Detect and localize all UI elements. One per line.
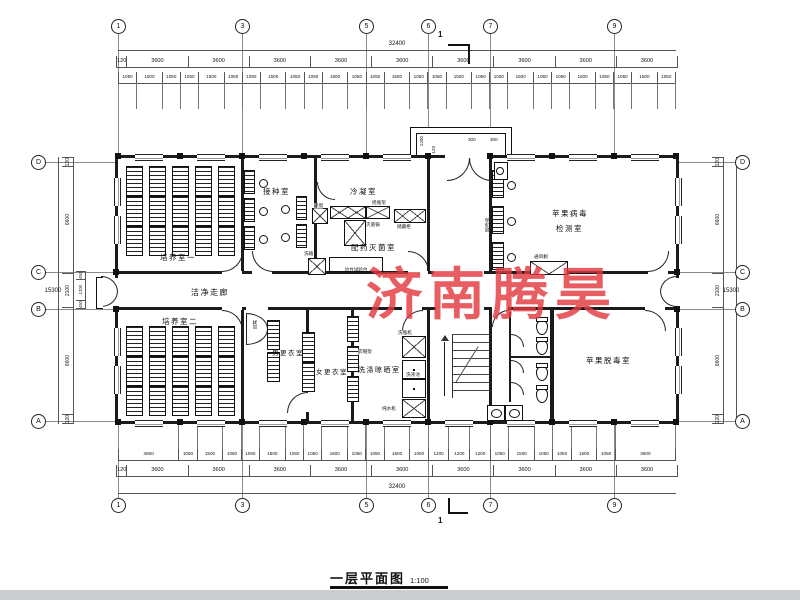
column-mark	[549, 153, 555, 159]
dim-left-sub: 4501200450	[76, 271, 86, 309]
dim-segment: 1050	[367, 72, 385, 83]
window	[135, 420, 163, 427]
dim-segment: 2100	[62, 274, 73, 309]
dim-segment: 3600	[617, 465, 678, 476]
pass-window-label: 递窗	[314, 203, 323, 209]
dim-segment: 3600	[433, 465, 494, 476]
grid-bubble-top-6: 6	[421, 19, 436, 34]
wall-corridor-c1	[115, 271, 222, 274]
wash-box	[308, 258, 326, 275]
window	[321, 420, 349, 427]
column-mark	[177, 419, 183, 425]
dim-bottom-sub: 3600105015001050105015001050105015001050…	[118, 449, 676, 461]
shelf-rack	[195, 326, 212, 356]
shelf-rack	[195, 226, 212, 256]
window	[675, 366, 682, 394]
grid-bubble-top-1: 1	[111, 19, 126, 34]
window	[675, 328, 682, 356]
dim-segment: 3600	[189, 465, 250, 476]
dim-segment: 1500	[261, 72, 287, 83]
dim-value: 15300	[723, 288, 740, 294]
entrance-dim-300a: 300	[468, 137, 476, 142]
section-mark-top-v	[468, 44, 470, 64]
floor-plan-canvas: 1 3 5 6 7 9 1 3 5 6 7 9 D C B A D C B A …	[0, 0, 800, 600]
column-mark	[611, 153, 617, 159]
dim-top-sub: 1050150010501050150010501050150010501050…	[118, 72, 676, 84]
dim-value: 32400	[389, 41, 406, 47]
room-label-virus-line2: 检测室	[556, 223, 583, 234]
entrance-door-leaf-left	[447, 158, 470, 181]
window	[507, 420, 535, 427]
stool	[259, 207, 268, 216]
stool	[507, 217, 516, 226]
window	[631, 154, 659, 161]
column-mark	[363, 419, 369, 425]
dim-segment: 3600	[250, 465, 311, 476]
shelf-rack	[195, 386, 212, 416]
shelf-rack	[218, 196, 235, 226]
window	[259, 154, 287, 161]
room-label-culture1: 培养室一	[160, 252, 196, 263]
stool	[281, 233, 290, 242]
window	[114, 216, 121, 244]
storage-cabinet	[394, 209, 426, 223]
bench-hatched	[330, 206, 366, 219]
column-mark	[363, 153, 369, 159]
grid-bubble-right-A: A	[735, 414, 750, 429]
wash-sink	[505, 405, 523, 421]
dim-segment: 1050	[410, 449, 428, 460]
drawing-scale: 1:100	[410, 576, 429, 585]
dim-segment: 1050	[179, 449, 197, 460]
grid-line-9	[614, 34, 615, 155]
dim-segment: 1050	[534, 72, 552, 83]
wall-wc-mid	[509, 356, 552, 358]
grid-bubble-bot-7: 7	[483, 498, 498, 513]
grid-bubble-bot-1: 1	[111, 498, 126, 513]
entry-stoop	[96, 277, 103, 309]
shelf-rack	[218, 386, 235, 416]
column-mark	[549, 419, 555, 425]
corridor-east-door-lower	[660, 291, 677, 307]
dim-segment: 1050	[614, 72, 632, 83]
watermark-text: 济南腾昊	[366, 250, 618, 331]
dim-value: 15300	[45, 288, 62, 294]
water-machine-label: 纯水机	[382, 406, 396, 412]
wc-stall-door	[511, 360, 524, 373]
grid-bubble-left-D: D	[31, 155, 46, 170]
section-mark-bot-label: 1	[438, 516, 444, 525]
dim-segment: 1200	[76, 280, 85, 300]
detox-room-door	[645, 310, 666, 331]
shelf-rack	[126, 386, 143, 416]
shelf-rack	[172, 196, 189, 226]
grid-bubble-right-B: B	[735, 302, 750, 317]
shelf-rack	[195, 196, 212, 226]
dim-segment: 120	[712, 157, 723, 167]
dim-segment: 1500	[632, 72, 658, 83]
work-bench	[296, 224, 307, 248]
column-mark	[177, 153, 183, 159]
dim-segment: 6600	[712, 167, 723, 273]
window	[445, 420, 473, 427]
dim-segment: 1050	[223, 449, 241, 460]
grid-bubble-top-9: 9	[607, 19, 622, 34]
window	[675, 178, 682, 206]
title-underline	[330, 586, 448, 589]
shelf-rack	[149, 356, 166, 386]
shelf-rack	[126, 196, 143, 226]
dim-segment: 3600	[494, 465, 555, 476]
dim-segment: 1050	[491, 449, 509, 460]
grid-bubble-bot-5: 5	[359, 498, 374, 513]
locker	[267, 320, 280, 350]
page-edge-strip	[0, 590, 800, 600]
shelf-rack	[149, 196, 166, 226]
window	[197, 420, 225, 427]
window	[197, 154, 225, 161]
dim-segment: 1050	[472, 72, 490, 83]
dim-segment: 3600	[189, 56, 250, 67]
dim-segment: 1500	[447, 72, 473, 83]
dim-top-bays: 120360036003600360036003600360036003600	[116, 56, 678, 68]
entrance-depth-dim: 1200	[419, 136, 424, 146]
dim-segment: 1050	[225, 72, 243, 83]
column-mark	[301, 419, 307, 425]
column-mark	[674, 269, 680, 275]
grid-bubble-bot-9: 9	[607, 498, 622, 513]
grid-bubble-left-A: A	[31, 414, 46, 429]
window	[321, 154, 349, 161]
wc-stall-door	[511, 334, 524, 347]
sink-label: 洗涤池	[406, 372, 420, 378]
column-mark	[611, 419, 617, 425]
dim-segment: 1050	[535, 449, 553, 460]
column-mark	[239, 419, 245, 425]
work-bench	[244, 198, 255, 222]
window	[383, 154, 411, 161]
dim-bottom-overall: 32400	[118, 483, 676, 494]
work-bench	[244, 170, 255, 194]
dim-segment: 1050	[490, 72, 508, 83]
dim-segment: 3600	[127, 465, 188, 476]
dim-segment: 1050	[366, 449, 384, 460]
wall-corridor-b1	[115, 307, 222, 310]
drawing-title: 一层平面图	[330, 571, 405, 586]
toilet	[536, 366, 548, 381]
shelf-rack	[172, 356, 189, 386]
room-label-men: 男更衣室	[272, 347, 304, 357]
dim-right-overall: 15300	[726, 157, 737, 424]
window	[114, 366, 121, 394]
shelf-rack	[172, 386, 189, 416]
dim-segment: 3600	[494, 56, 555, 67]
dim-segment: 1050	[286, 449, 304, 460]
work-bench	[296, 196, 307, 220]
dim-segment: 1050	[597, 449, 615, 460]
shelf-rack	[218, 166, 235, 196]
dim-segment: 1500	[199, 72, 225, 83]
dim-segment: 1500	[385, 72, 411, 83]
section-mark-top-label: 1	[438, 30, 444, 39]
pass-window-box	[312, 208, 328, 224]
corridor-west-door-upper	[101, 276, 118, 292]
shelf-rack	[218, 326, 235, 356]
hall-fixture-basin	[496, 167, 504, 175]
shelf-rack	[195, 166, 212, 196]
bottle-washer	[402, 336, 426, 358]
window	[507, 154, 535, 161]
toilet	[536, 340, 548, 355]
dim-top-overall: 32400	[118, 40, 676, 51]
room-label-culture2: 培养室二	[162, 316, 198, 327]
room-label-virus-line1: 苹果病毒	[552, 208, 588, 219]
dim-segment: 1200	[429, 449, 450, 460]
stool	[281, 205, 290, 214]
dim-segment: 1200	[449, 449, 470, 460]
dim-value: 32400	[389, 484, 406, 490]
coat-rack-label: 衣帽架	[358, 349, 372, 355]
dim-left-segs: 120660021006600120	[62, 157, 74, 424]
dim-segment: 120	[116, 56, 127, 67]
locker	[302, 362, 315, 392]
column-mark	[425, 419, 431, 425]
corridor-east-door-upper	[660, 276, 677, 292]
dim-segment: 1050	[181, 72, 199, 83]
entrance-dim-300b: 300	[490, 137, 498, 142]
dim-left-overall: 15300	[48, 157, 59, 424]
condensing-room-door	[317, 182, 335, 200]
dim-segment: 6600	[62, 308, 73, 414]
dim-segment: 1500	[385, 449, 411, 460]
dim-segment: 450	[76, 271, 85, 280]
dim-segment: 1500	[323, 72, 349, 83]
shelf-rack	[195, 356, 212, 386]
dim-bottom-bays: 120360036003600360036003600360036003600	[116, 465, 678, 477]
women-change-door	[287, 392, 308, 413]
section-mark-bot-h	[448, 512, 468, 514]
entrance-door-leaf-right	[469, 158, 492, 181]
dim-segment: 1050	[304, 449, 322, 460]
dim-segment: 450	[76, 301, 85, 309]
sterilizer-label: 灭菌锅	[366, 222, 380, 228]
column-mark	[115, 419, 121, 425]
grid-bubble-top-7: 7	[483, 19, 498, 34]
dim-segment: 6600	[62, 167, 73, 273]
room-label-women: 女更衣室	[316, 366, 348, 376]
wash-box-label: 洗箱	[304, 251, 313, 257]
dim-segment: 3600	[311, 465, 372, 476]
sink-basin	[402, 379, 426, 398]
clean-bench-label: 超净台	[484, 218, 490, 232]
side-bench-label: 边台试验台	[345, 267, 368, 272]
work-bench	[244, 226, 255, 250]
window	[114, 178, 121, 206]
dim-segment: 1500	[570, 72, 596, 83]
wall-corridor-c2	[242, 271, 252, 274]
inoculation-door	[252, 251, 273, 272]
room-label-detox: 苹果脱毒室	[586, 355, 631, 366]
dim-segment: 1050	[596, 72, 614, 83]
dim-segment: 2100	[712, 274, 723, 309]
dim-segment: 1500	[509, 449, 535, 460]
bench-hatched	[366, 206, 390, 219]
dim-segment: 3600	[556, 465, 617, 476]
dim-segment: 1050	[348, 72, 366, 83]
dim-segment: 3600	[372, 56, 433, 67]
dim-segment: 1050	[118, 72, 137, 83]
grid-bubble-bot-3: 3	[235, 498, 250, 513]
dim-segment: 1050	[552, 72, 570, 83]
dim-segment: 1500	[508, 72, 534, 83]
shelf-rack	[172, 326, 189, 356]
dim-segment: 3600	[372, 465, 433, 476]
wc-stall-door	[511, 382, 524, 395]
column-mark	[113, 306, 119, 312]
window	[383, 420, 411, 427]
dim-segment: 1050	[242, 449, 260, 460]
column-mark	[425, 153, 431, 159]
dim-segment: 3600	[118, 449, 179, 460]
stair-rail	[444, 342, 445, 396]
wall-rack	[347, 316, 359, 342]
column-mark	[113, 269, 119, 275]
clean-bench	[492, 206, 504, 234]
dim-segment: 120	[116, 465, 127, 476]
dim-segment: 1050	[305, 72, 323, 83]
room-label-condensing: 冷凝室	[350, 186, 377, 197]
room-label-corridor: 洁净走廊	[191, 287, 229, 298]
room-label-washing: 洗涤晾晒室	[358, 365, 401, 375]
entrance-wall-dim: 120	[431, 146, 436, 154]
dim-segment: 120	[62, 157, 73, 167]
dim-segment: 3600	[311, 56, 372, 67]
dim-segment: 3600	[556, 56, 617, 67]
drawing-title-block: 一层平面图1:100	[330, 568, 429, 588]
dim-segment: 1500	[198, 449, 224, 460]
virus-room-door	[648, 251, 669, 272]
grid-bubble-top-5: 5	[359, 19, 374, 34]
water-machine	[402, 399, 426, 418]
dim-segment: 1500	[137, 72, 163, 83]
stool	[259, 235, 268, 244]
window	[259, 420, 287, 427]
dim-segment: 1050	[348, 449, 366, 460]
shelf-rack	[149, 166, 166, 196]
grid-bubble-left-C: C	[31, 265, 46, 280]
shelf-rack	[126, 226, 143, 256]
grid-line-1	[118, 34, 119, 155]
window	[569, 420, 597, 427]
dim-segment: 1500	[572, 449, 598, 460]
dim-segment: 1050	[410, 72, 428, 83]
dim-segment: 1050	[658, 72, 676, 83]
storage-label: 储藏柜	[397, 224, 411, 230]
window	[631, 420, 659, 427]
dim-segment: 1050	[428, 72, 446, 83]
dim-segment: 120	[712, 415, 723, 424]
staircase	[452, 334, 489, 398]
dim-segment: 1200	[470, 449, 491, 460]
dim-segment: 3600	[616, 449, 676, 460]
room-label-inoculation: 接种室	[263, 186, 290, 197]
window	[114, 328, 121, 356]
dim-segment: 3600	[250, 56, 311, 67]
grid-bubble-top-3: 3	[235, 19, 250, 34]
window	[135, 154, 163, 161]
dim-segment: 1050	[286, 72, 304, 83]
dim-segment: 1050	[163, 72, 181, 83]
dim-segment: 1500	[322, 449, 348, 460]
grid-bubble-bot-6: 6	[421, 498, 436, 513]
column-mark	[673, 419, 679, 425]
shelf-rack	[218, 356, 235, 386]
corridor-west-door-lower	[101, 291, 118, 307]
dim-segment: 3600	[127, 56, 188, 67]
shaker-rack-label: 摇瓶架	[372, 200, 386, 206]
dim-segment: 6600	[712, 308, 723, 414]
stair-arrow	[441, 335, 449, 341]
wash-sink	[487, 405, 505, 421]
shelf-rack	[126, 166, 143, 196]
window	[569, 154, 597, 161]
dim-segment: 120	[62, 415, 73, 424]
section-mark-top-h	[448, 44, 470, 46]
grid-bubble-right-C: C	[735, 265, 750, 280]
grid-bubble-right-D: D	[735, 155, 750, 170]
shelf-rack	[172, 166, 189, 196]
grid-bubble-left-B: B	[31, 302, 46, 317]
toilet	[536, 388, 548, 403]
dim-segment: 1050	[553, 449, 571, 460]
column-mark	[239, 153, 245, 159]
wall-rack	[347, 376, 359, 402]
shelf-rack	[149, 386, 166, 416]
window	[675, 216, 682, 244]
wall-left-lower	[115, 306, 118, 424]
shelf-rack	[149, 326, 166, 356]
column-mark	[673, 153, 679, 159]
shelf-rack	[218, 226, 235, 256]
column-mark	[115, 153, 121, 159]
shelf-rack	[126, 326, 143, 356]
dim-segment: 1500	[260, 449, 286, 460]
wall-right-lower	[676, 306, 679, 424]
air-shower-label: 风淋	[252, 320, 258, 329]
dim-segment: 1050	[243, 72, 261, 83]
dim-segment: 3600	[433, 56, 494, 67]
stool	[507, 181, 516, 190]
dim-segment: 3600	[617, 56, 678, 67]
shelf-rack	[126, 356, 143, 386]
column-mark	[301, 153, 307, 159]
